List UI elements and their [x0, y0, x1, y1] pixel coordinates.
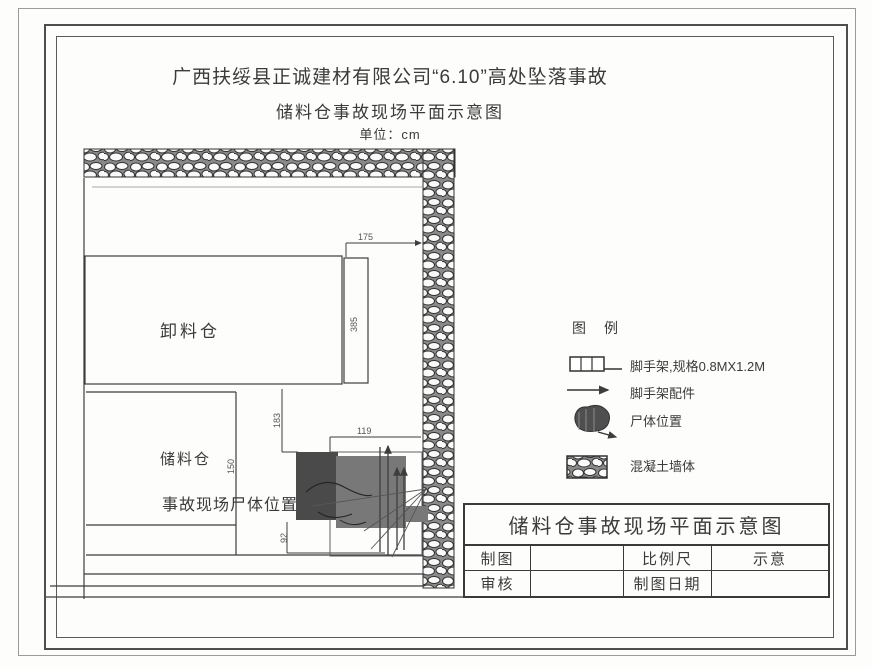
body-position-label: 事故现场尸体位置 [162, 491, 298, 515]
body-position-icon [575, 405, 616, 437]
title-block-date-label: 制图日期 [624, 571, 712, 596]
unloading-silo-label: 卸料仓 [160, 317, 220, 342]
legend-title: 图 例 [572, 318, 620, 338]
dim-storage-silo-height: 150 [226, 459, 236, 474]
title-block-drawn-by-value [531, 546, 624, 571]
title-block: 储料仓事故现场平面示意图 制图 比例尺 示意 审核 制图日期 [463, 503, 830, 598]
title-block-date-value [712, 571, 828, 596]
dim-wall-gap-width: 175 [358, 232, 373, 242]
title-block-checked-by-value [531, 571, 624, 596]
body-position-area [296, 452, 428, 556]
scanned-accident-site-plan: 广西扶绥县正诚建材有限公司“6.10”高处坠落事故 储料仓事故现场平面示意图 单… [0, 0, 872, 668]
storage-silo-outline [86, 392, 236, 555]
legend-item-scaffold-label: 脚手架,规格0.8MX1.2M [630, 356, 765, 375]
site-boundary-lines [46, 178, 464, 599]
legend-item-body-position-label: 尸体位置 [630, 411, 682, 430]
dim-scaffold-area-width: 119 [357, 426, 371, 436]
title-block-checked-by-label: 审核 [465, 571, 531, 596]
title-block-scale-label: 比例尺 [624, 546, 712, 571]
dim-unloading-silo-depth: 385 [349, 317, 359, 332]
legend-item-concrete-wall-label: 混凝土墙体 [630, 456, 695, 475]
legend-item-scaffold-parts-label: 脚手架配件 [630, 383, 695, 402]
title-block-title: 储料仓事故现场平面示意图 [465, 505, 828, 546]
concrete-wall-top [84, 149, 455, 177]
title-block-scale-value: 示意 [712, 546, 828, 571]
concrete-wall-icon [567, 456, 607, 478]
dim-passage-height: 183 [272, 413, 282, 428]
dim-step-height: 92 [279, 533, 289, 543]
scaffold-icon [570, 357, 622, 371]
storage-silo-label: 储料仓 [160, 448, 211, 469]
title-block-drawn-by-label: 制图 [465, 546, 531, 571]
unloading-silo-outline [85, 256, 368, 384]
concrete-wall-right [423, 149, 454, 588]
